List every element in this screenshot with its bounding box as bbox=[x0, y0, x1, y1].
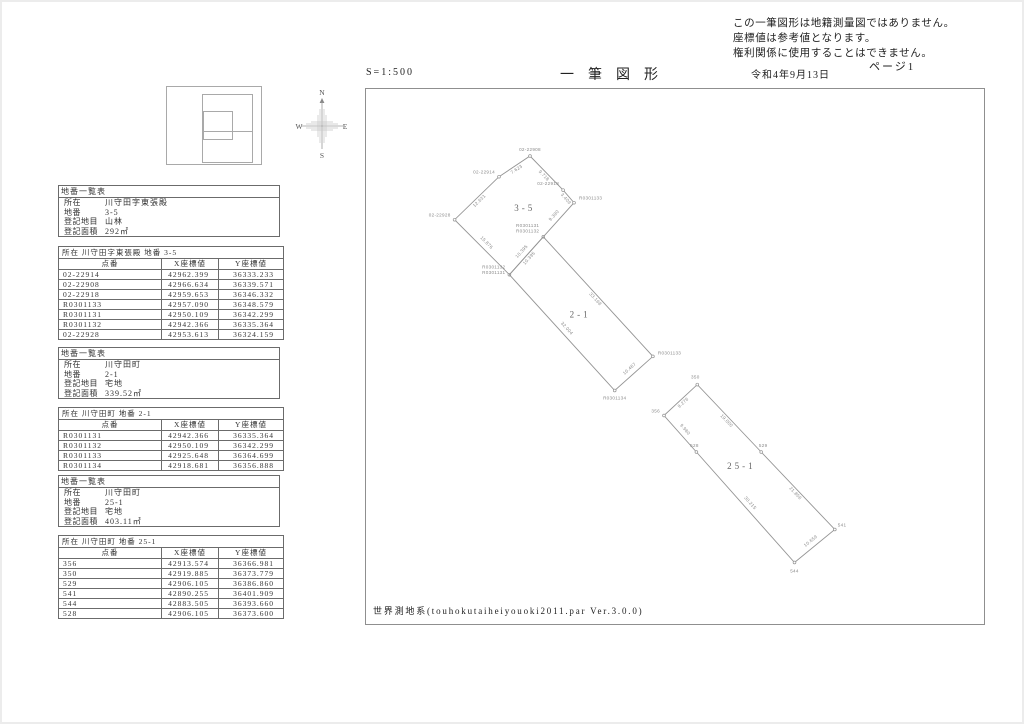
edge-length-label: 9.718 bbox=[538, 169, 551, 182]
table-row: 52842906.10536373.600 bbox=[59, 609, 284, 619]
edge-length-label: 3.409 bbox=[560, 192, 572, 205]
disclaimer-line: 座標値は参考値となります。 bbox=[733, 31, 955, 46]
y-coordinate-cell: 36339.571 bbox=[219, 280, 284, 290]
vertex-marker bbox=[573, 201, 576, 204]
summary-row: 登記地目宅地 bbox=[59, 507, 279, 517]
column-header: Y座標値 bbox=[219, 548, 284, 559]
summary-field-value: 山林 bbox=[105, 217, 123, 227]
x-coordinate-cell: 42918.681 bbox=[162, 461, 219, 471]
x-coordinate-cell: 42966.634 bbox=[162, 280, 219, 290]
compass-rose: N S W E bbox=[295, 85, 349, 163]
vertex-label: 02-22918 bbox=[537, 181, 559, 186]
x-coordinate-cell: 42957.090 bbox=[162, 300, 219, 310]
point-number-cell: 528 bbox=[59, 609, 162, 619]
vertex-label: R0301132 bbox=[482, 265, 505, 270]
x-coordinate-cell: 42890.255 bbox=[162, 589, 219, 599]
table-row: R030113342957.09036348.579 bbox=[59, 300, 284, 310]
y-coordinate-cell: 36373.600 bbox=[219, 609, 284, 619]
summary-field-label: 所在 bbox=[59, 488, 105, 498]
x-coordinate-cell: 42942.366 bbox=[162, 320, 219, 330]
compass-north-label: N bbox=[319, 88, 325, 97]
summary-row: 地番2-1 bbox=[59, 370, 279, 380]
point-number-cell: 350 bbox=[59, 569, 162, 579]
edge-length-label: 32.004 bbox=[560, 321, 574, 336]
summary-field-value: 宅地 bbox=[105, 379, 123, 389]
summary-field-value: 292㎡ bbox=[105, 227, 129, 237]
vertex-label: 350 bbox=[691, 375, 700, 380]
summary-title: 地番一覧表 bbox=[59, 348, 279, 360]
y-coordinate-cell: 36401.909 bbox=[219, 589, 284, 599]
point-number-cell: R0301133 bbox=[59, 451, 162, 461]
compass-east-label: E bbox=[343, 122, 348, 131]
summary-field-value: 403.11㎡ bbox=[105, 517, 142, 527]
map-scale-label: S=1:500 bbox=[366, 67, 414, 78]
x-coordinate-cell: 42919.885 bbox=[162, 569, 219, 579]
vertex-label: 544 bbox=[790, 569, 799, 574]
y-coordinate-cell: 36373.779 bbox=[219, 569, 284, 579]
x-coordinate-cell: 42950.109 bbox=[162, 310, 219, 320]
summary-field-label: 登記面積 bbox=[59, 517, 105, 527]
column-header: 点番 bbox=[59, 259, 162, 270]
compass-west-label: W bbox=[295, 122, 303, 131]
summary-field-label: 登記面積 bbox=[59, 227, 105, 237]
x-coordinate-cell: 42925.648 bbox=[162, 451, 219, 461]
point-number-cell: 541 bbox=[59, 589, 162, 599]
vertex-label: 528 bbox=[690, 443, 699, 448]
parcel-info-sidebar: 地番一覧表所在川守田字東張殿地番3-5登記地目山林登記面積292㎡所在 川守田字… bbox=[58, 185, 283, 619]
coordinate-table-title: 所在 川守田字東張殿 地番 3-5 bbox=[59, 247, 284, 259]
coordinate-table: 所在 川守田町 地番 25-1点番X座標値Y座標値35642913.574363… bbox=[58, 535, 284, 619]
vertex-marker bbox=[652, 355, 655, 358]
summary-field-label: 登記地目 bbox=[59, 507, 105, 517]
column-header: X座標値 bbox=[162, 548, 219, 559]
table-row: 35042919.88536373.779 bbox=[59, 569, 284, 579]
summary-title: 地番一覧表 bbox=[59, 476, 279, 488]
vertex-label: 541 bbox=[838, 523, 847, 528]
page-number: ページ1 bbox=[869, 58, 915, 74]
column-header: Y座標値 bbox=[219, 420, 284, 431]
disclaimer-line: この一筆図形は地籍測量図ではありません。 bbox=[733, 16, 955, 31]
map-frame: 7.6239.7183.4099.39010.39515.87612.6313-… bbox=[365, 88, 985, 625]
coordinate-table-title: 所在 川守田町 地番 2-1 bbox=[59, 408, 284, 420]
vertex-marker bbox=[498, 175, 501, 178]
x-coordinate-cell: 42906.105 bbox=[162, 609, 219, 619]
summary-title: 地番一覧表 bbox=[59, 186, 279, 198]
summary-row: 地番3-5 bbox=[59, 208, 279, 218]
table-row: R030113442918.68136356.888 bbox=[59, 461, 284, 471]
summary-row: 登記地目山林 bbox=[59, 217, 279, 227]
table-row: 02-2292842953.61336324.159 bbox=[59, 330, 284, 340]
column-header: X座標値 bbox=[162, 259, 219, 270]
x-coordinate-cell: 42913.574 bbox=[162, 559, 219, 569]
point-number-cell: 544 bbox=[59, 599, 162, 609]
table-row: 52942906.10536386.860 bbox=[59, 579, 284, 589]
point-number-cell: 356 bbox=[59, 559, 162, 569]
vertex-label: R0301134 bbox=[603, 396, 626, 401]
x-coordinate-cell: 42906.105 bbox=[162, 579, 219, 589]
x-coordinate-cell: 42942.366 bbox=[162, 431, 219, 441]
summary-row: 所在川守田字東張殿 bbox=[59, 198, 279, 208]
table-row: R030113342925.64836364.699 bbox=[59, 451, 284, 461]
y-coordinate-cell: 36335.364 bbox=[219, 320, 284, 330]
y-coordinate-cell: 36335.364 bbox=[219, 431, 284, 441]
parcel-number-label: 2-1 bbox=[570, 310, 591, 320]
vertex-label: R0301131 bbox=[516, 223, 539, 228]
parcel-summary-block: 地番一覧表所在川守田町地番25-1登記地目宅地登記面積403.11㎡ bbox=[58, 475, 280, 527]
column-header: X座標値 bbox=[162, 420, 219, 431]
parcel-map: 7.6239.7183.4099.39010.39515.87612.6313-… bbox=[366, 89, 984, 624]
page-title: 一筆図形 bbox=[560, 64, 672, 84]
x-coordinate-cell: 42883.505 bbox=[162, 599, 219, 609]
vertex-marker bbox=[613, 389, 616, 392]
edge-length-label: 9.276 bbox=[677, 396, 690, 409]
parcel-summary-block: 地番一覧表所在川守田字東張殿地番3-5登記地目山林登記面積292㎡ bbox=[58, 185, 280, 237]
column-header: Y座標値 bbox=[219, 259, 284, 270]
summary-row: 所在川守田町 bbox=[59, 488, 279, 498]
edge-length-label: 30.215 bbox=[743, 495, 757, 510]
compass-south-label: S bbox=[320, 151, 324, 160]
summary-row: 所在川守田町 bbox=[59, 360, 279, 370]
summary-field-value: 川守田町 bbox=[105, 488, 141, 498]
summary-row: 登記地目宅地 bbox=[59, 379, 279, 389]
y-coordinate-cell: 36356.888 bbox=[219, 461, 284, 471]
disclaimer-line: 権利関係に使用することはできません。 bbox=[733, 46, 955, 61]
summary-row: 地番25-1 bbox=[59, 498, 279, 508]
point-number-cell: 529 bbox=[59, 579, 162, 589]
parcel-summary-block: 地番一覧表所在川守田町地番2-1登記地目宅地登記面積339.52㎡ bbox=[58, 347, 280, 399]
document-date: 令和4年9月13日 bbox=[751, 66, 830, 81]
vertex-label: 02-22914 bbox=[473, 170, 495, 175]
edge-length-label: 10.659 bbox=[803, 534, 819, 548]
vertex-marker bbox=[793, 561, 796, 564]
point-number-cell: R0301132 bbox=[59, 441, 162, 451]
point-number-cell: 02-22908 bbox=[59, 280, 162, 290]
table-row: 54142890.25536401.909 bbox=[59, 589, 284, 599]
point-number-cell: R0301133 bbox=[59, 300, 162, 310]
summary-row: 登記面積292㎡ bbox=[59, 227, 279, 237]
vertex-marker bbox=[453, 218, 456, 221]
x-coordinate-cell: 42950.109 bbox=[162, 441, 219, 451]
vertex-label: 02-22908 bbox=[519, 147, 541, 152]
table-row: R030113242942.36636335.364 bbox=[59, 320, 284, 330]
summary-field-value: 宅地 bbox=[105, 507, 123, 517]
coordinate-table: 所在 川守田字東張殿 地番 3-5点番X座標値Y座標値02-2291442962… bbox=[58, 246, 284, 340]
x-coordinate-cell: 42962.399 bbox=[162, 270, 219, 280]
y-coordinate-cell: 36348.579 bbox=[219, 300, 284, 310]
y-coordinate-cell: 36386.860 bbox=[219, 579, 284, 589]
vertex-label: R0301132 bbox=[516, 228, 539, 233]
table-row: 35642913.57436366.981 bbox=[59, 559, 284, 569]
summary-field-label: 地番 bbox=[59, 498, 105, 508]
point-number-cell: 02-22928 bbox=[59, 330, 162, 340]
vertex-marker bbox=[663, 414, 666, 417]
vertex-label: 02-22928 bbox=[429, 213, 451, 218]
table-row: R030113242950.10936342.299 bbox=[59, 441, 284, 451]
vertex-label: 356 bbox=[651, 409, 660, 414]
vertex-marker bbox=[833, 528, 836, 531]
vertex-marker bbox=[529, 155, 532, 158]
y-coordinate-cell: 36346.332 bbox=[219, 290, 284, 300]
vertex-marker bbox=[562, 189, 565, 192]
summary-field-label: 地番 bbox=[59, 370, 105, 380]
vertex-marker bbox=[760, 451, 763, 454]
point-number-cell: R0301132 bbox=[59, 320, 162, 330]
table-row: R030113142950.10936342.299 bbox=[59, 310, 284, 320]
edge-length-label: 15.876 bbox=[479, 235, 494, 250]
point-number-cell: R0301131 bbox=[59, 431, 162, 441]
summary-field-label: 所在 bbox=[59, 360, 105, 370]
summary-field-value: 25-1 bbox=[105, 498, 124, 508]
y-coordinate-cell: 36366.981 bbox=[219, 559, 284, 569]
vertex-marker bbox=[695, 451, 698, 454]
x-coordinate-cell: 42953.613 bbox=[162, 330, 219, 340]
summary-field-label: 登記面積 bbox=[59, 389, 105, 399]
summary-row: 登記面積339.52㎡ bbox=[59, 389, 279, 399]
summary-field-label: 所在 bbox=[59, 198, 105, 208]
point-number-cell: R0301134 bbox=[59, 461, 162, 471]
vertex-marker bbox=[696, 383, 699, 386]
column-header: 点番 bbox=[59, 420, 162, 431]
summary-field-label: 登記地目 bbox=[59, 379, 105, 389]
y-coordinate-cell: 36342.299 bbox=[219, 310, 284, 320]
parcel-number-label: 3-5 bbox=[514, 203, 535, 213]
summary-row: 登記面積403.11㎡ bbox=[59, 517, 279, 527]
x-coordinate-cell: 42959.653 bbox=[162, 290, 219, 300]
point-number-cell: 02-22914 bbox=[59, 270, 162, 280]
coordinate-table-title: 所在 川守田町 地番 25-1 bbox=[59, 536, 284, 548]
y-coordinate-cell: 36324.159 bbox=[219, 330, 284, 340]
summary-field-label: 登記地目 bbox=[59, 217, 105, 227]
point-number-cell: 02-22918 bbox=[59, 290, 162, 300]
vertex-label: R0301133 bbox=[658, 350, 681, 355]
column-header: 点番 bbox=[59, 548, 162, 559]
disclaimer-text: この一筆図形は地籍測量図ではありません。 座標値は参考値となります。 権利関係に… bbox=[733, 16, 955, 61]
summary-field-value: 339.52㎡ bbox=[105, 389, 142, 399]
datum-note: 世界測地系(touhokutaiheiyouoki2011.par Ver.3.… bbox=[373, 604, 643, 617]
summary-field-value: 3-5 bbox=[105, 208, 119, 218]
vertex-label: R0301133 bbox=[579, 196, 602, 201]
parcel-number-label: 25-1 bbox=[727, 461, 756, 471]
parcel-outline-25-1 bbox=[664, 385, 835, 563]
y-coordinate-cell: 36393.660 bbox=[219, 599, 284, 609]
vertex-label: 529 bbox=[759, 443, 768, 448]
edge-length-label: 10.467 bbox=[622, 361, 637, 375]
table-row: 54442883.50536393.660 bbox=[59, 599, 284, 609]
y-coordinate-cell: 36364.699 bbox=[219, 451, 284, 461]
summary-field-value: 川守田字東張殿 bbox=[105, 198, 168, 208]
vertex-label: R0301131 bbox=[482, 270, 505, 275]
point-number-cell: R0301131 bbox=[59, 310, 162, 320]
inset-highlight-rect bbox=[203, 111, 233, 140]
edge-length-label: 7.623 bbox=[510, 163, 524, 174]
summary-field-value: 川守田町 bbox=[105, 360, 141, 370]
table-row: 02-2290842966.63436339.571 bbox=[59, 280, 284, 290]
table-row: 02-2291842959.65336346.332 bbox=[59, 290, 284, 300]
summary-field-label: 地番 bbox=[59, 208, 105, 218]
y-coordinate-cell: 36333.233 bbox=[219, 270, 284, 280]
y-coordinate-cell: 36342.299 bbox=[219, 441, 284, 451]
table-row: 02-2291442962.39936333.233 bbox=[59, 270, 284, 280]
table-row: R030113142942.36636335.364 bbox=[59, 431, 284, 441]
coordinate-table: 所在 川守田町 地番 2-1点番X座標値Y座標値R030113142942.36… bbox=[58, 407, 284, 471]
summary-field-value: 2-1 bbox=[105, 370, 119, 380]
